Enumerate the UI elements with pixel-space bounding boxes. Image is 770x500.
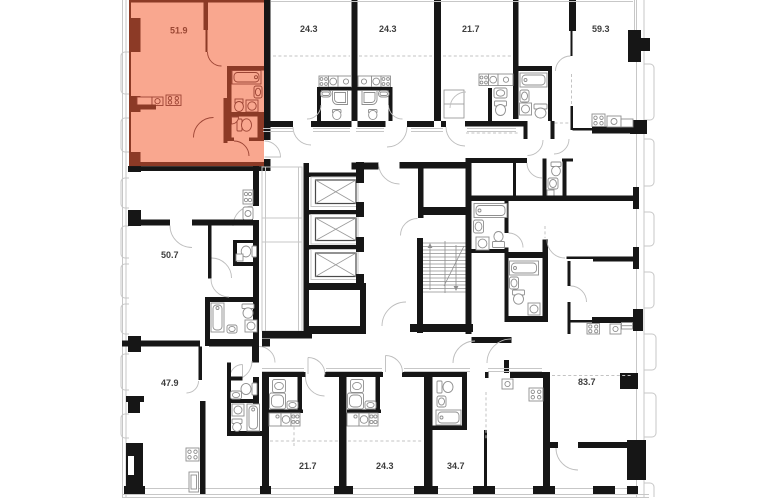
svg-text:50.7: 50.7	[161, 250, 179, 260]
svg-text:47.9: 47.9	[161, 378, 179, 388]
svg-text:24.3: 24.3	[379, 24, 397, 34]
svg-text:83.7: 83.7	[578, 377, 596, 387]
svg-text:24.3: 24.3	[376, 461, 394, 471]
svg-text:59.3: 59.3	[592, 24, 610, 34]
svg-text:51.9: 51.9	[170, 26, 188, 36]
svg-text:34.7: 34.7	[447, 461, 465, 471]
svg-text:21.7: 21.7	[299, 461, 317, 471]
svg-text:21.7: 21.7	[462, 24, 480, 34]
svg-text:24.3: 24.3	[300, 24, 318, 34]
